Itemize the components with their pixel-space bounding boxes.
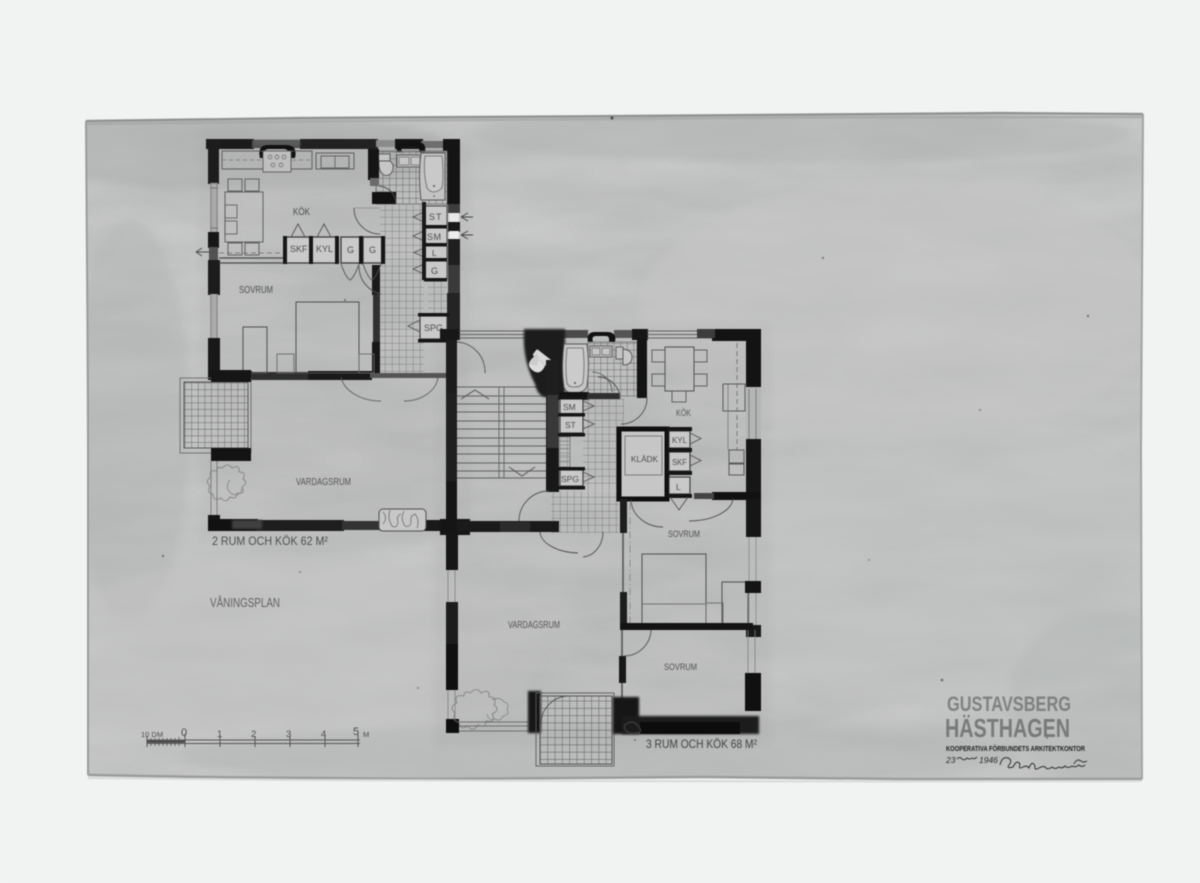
svg-text:HÄSTHAGEN: HÄSTHAGEN [945, 713, 1070, 743]
svg-text:L: L [676, 482, 681, 492]
svg-text:0: 0 [181, 727, 187, 739]
svg-text:SOVRUM: SOVRUM [668, 529, 700, 540]
svg-text:SKF: SKF [672, 458, 687, 467]
svg-text:10 DM: 10 DM [141, 730, 163, 739]
svg-text:KYL: KYL [672, 436, 688, 445]
svg-text:2 RUM OCH KÖK 62 M²: 2 RUM OCH KÖK 62 M² [212, 534, 328, 548]
svg-text:VARDAGSRUM: VARDAGSRUM [508, 620, 560, 631]
svg-text:SM: SM [427, 232, 442, 242]
svg-text:ST: ST [565, 420, 576, 430]
svg-text:KÖK: KÖK [676, 408, 691, 419]
svg-text:2: 2 [251, 729, 256, 740]
svg-text:L: L [432, 248, 437, 258]
svg-text:SOVRUM: SOVRUM [664, 662, 697, 673]
svg-text:G: G [369, 245, 376, 255]
svg-text:VÅNINGSPLAN: VÅNINGSPLAN [210, 595, 280, 610]
svg-text:1946: 1946 [979, 755, 998, 765]
svg-text:23: 23 [945, 755, 956, 765]
svg-text:5: 5 [353, 726, 359, 738]
svg-text:M: M [363, 730, 369, 739]
svg-text:3 RUM OCH KÖK 68 M²: 3 RUM OCH KÖK 68 M² [646, 737, 757, 751]
svg-text:3: 3 [286, 729, 291, 740]
svg-text:SKF: SKF [290, 244, 308, 254]
svg-text:SOVRUM: SOVRUM [239, 284, 273, 296]
svg-text:G: G [431, 266, 438, 276]
svg-text:VARDAGSRUM: VARDAGSRUM [296, 476, 351, 488]
svg-text:ST: ST [429, 212, 443, 222]
svg-text:KÖK: KÖK [293, 206, 310, 218]
svg-text:KOOPERATIVA FÖRBUNDETS ARKITEK: KOOPERATIVA FÖRBUNDETS ARKITEKTKONTOR [946, 744, 1085, 753]
svg-text:G: G [347, 245, 354, 255]
svg-text:SPG: SPG [561, 474, 579, 484]
svg-text:1: 1 [217, 729, 222, 740]
svg-text:SM: SM [563, 402, 576, 412]
svg-text:KLÄDK: KLÄDK [631, 454, 658, 464]
svg-text:KYL: KYL [316, 244, 333, 254]
svg-text:4: 4 [321, 729, 326, 740]
